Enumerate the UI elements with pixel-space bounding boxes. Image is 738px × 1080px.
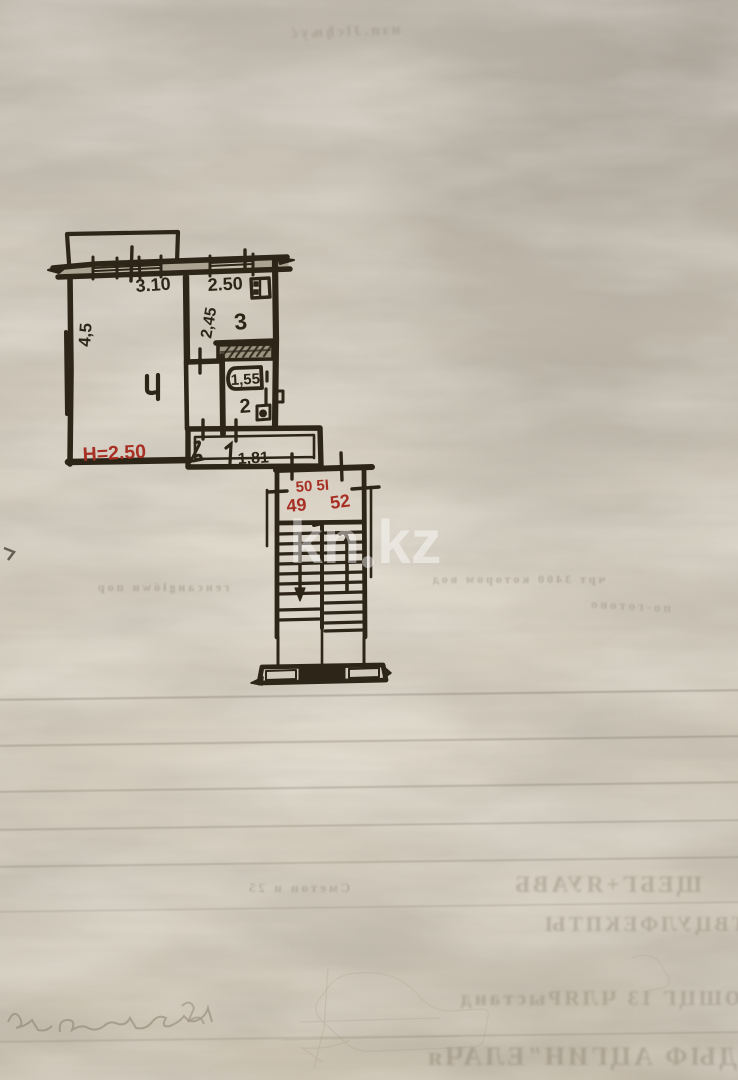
svg-text:3.10: 3.10: [135, 274, 171, 296]
svg-text:4,5: 4,5: [75, 322, 96, 347]
svg-text:2,45: 2,45: [198, 306, 220, 340]
svg-text:2: 2: [239, 395, 252, 418]
svg-text:50 5I: 50 5I: [295, 477, 329, 496]
svg-text:1,81: 1,81: [237, 449, 269, 468]
svg-text:3: 3: [233, 308, 248, 335]
svg-text:H=2.50: H=2.50: [82, 441, 147, 466]
svg-text:1,55: 1,55: [230, 370, 260, 389]
svg-text:2.50: 2.50: [207, 273, 243, 295]
